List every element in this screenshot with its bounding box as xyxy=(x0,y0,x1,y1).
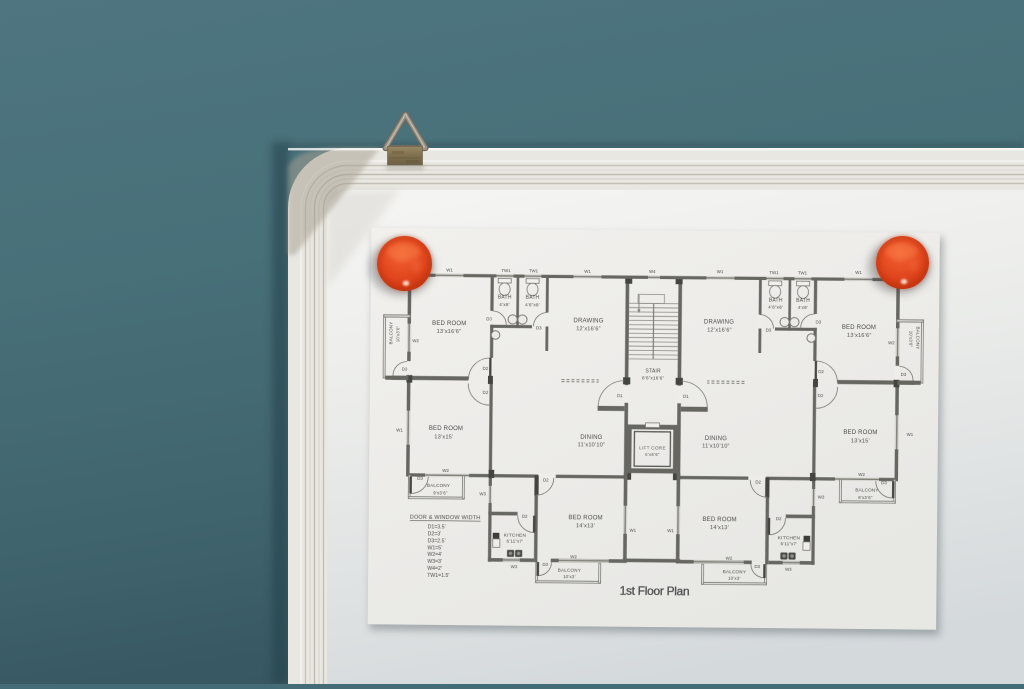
svg-text:W1: W1 xyxy=(584,269,591,274)
svg-text:W2=4’: W2=4’ xyxy=(427,552,442,558)
svg-text:W3: W3 xyxy=(479,491,486,496)
svg-text:BALCONY: BALCONY xyxy=(558,568,581,573)
svg-text:14’x13’: 14’x13’ xyxy=(576,523,595,529)
svg-text:11’x10’10”: 11’x10’10” xyxy=(702,443,729,449)
svg-text:10’x3’: 10’x3’ xyxy=(563,574,576,579)
svg-text:TW1=1.5’: TW1=1.5’ xyxy=(427,573,449,579)
svg-text:D3: D3 xyxy=(901,372,907,377)
svg-text:BATH: BATH xyxy=(769,297,783,303)
svg-text:W1: W1 xyxy=(855,270,862,275)
svg-text:4’x8’: 4’x8’ xyxy=(499,302,510,307)
svg-text:W3: W3 xyxy=(785,567,792,572)
svg-text:W4: W4 xyxy=(649,269,656,274)
svg-text:W1: W1 xyxy=(667,528,674,533)
svg-text:D3: D3 xyxy=(881,480,887,485)
svg-text:BALCONY: BALCONY xyxy=(427,483,450,488)
svg-text:1st Floor Plan: 1st Floor Plan xyxy=(619,584,689,599)
svg-text:W4=2’: W4=2’ xyxy=(427,566,442,572)
svg-text:BATH: BATH xyxy=(526,295,540,301)
svg-text:DRAWING: DRAWING xyxy=(573,318,603,324)
svg-text:11’x10’10”: 11’x10’10” xyxy=(578,442,605,448)
svg-text:W1: W1 xyxy=(396,427,403,432)
svg-text:DINING: DINING xyxy=(705,436,727,442)
svg-text:TW1: TW1 xyxy=(769,270,779,275)
svg-text:W3=3’: W3=3’ xyxy=(427,559,442,565)
svg-text:W2: W2 xyxy=(858,472,865,477)
svg-text:10’x3’6”: 10’x3’6” xyxy=(395,325,400,342)
svg-text:D2=3’: D2=3’ xyxy=(428,531,442,537)
svg-text:D1=3.5’: D1=3.5’ xyxy=(428,524,446,530)
svg-text:BALCONY: BALCONY xyxy=(855,487,878,492)
svg-text:W1=5’: W1=5’ xyxy=(427,545,442,551)
svg-text:BED ROOM: BED ROOM xyxy=(429,426,463,432)
svg-text:10’x3’6”: 10’x3’6” xyxy=(908,331,913,348)
svg-text:W2: W2 xyxy=(442,468,449,473)
svg-text:6’11”x7’: 6’11”x7’ xyxy=(507,538,524,543)
svg-text:D3: D3 xyxy=(542,562,548,567)
svg-text:D3: D3 xyxy=(486,316,492,321)
svg-text:BALCONY: BALCONY xyxy=(915,327,920,350)
svg-text:D2: D2 xyxy=(776,516,782,521)
svg-text:D3: D3 xyxy=(402,366,408,371)
svg-text:13’x16’6”: 13’x16’6” xyxy=(847,333,872,339)
svg-text:8’6”x16’6”: 8’6”x16’6” xyxy=(642,375,664,380)
svg-text:BATH: BATH xyxy=(498,294,512,300)
svg-text:D2: D2 xyxy=(543,477,549,482)
svg-text:D2: D2 xyxy=(818,393,824,398)
svg-text:6’x6’6”: 6’x6’6” xyxy=(645,452,660,457)
svg-text:W2: W2 xyxy=(570,554,577,559)
svg-text:BED ROOM: BED ROOM xyxy=(568,515,602,521)
svg-text:D3=2.5’: D3=2.5’ xyxy=(427,538,445,544)
svg-text:W2: W2 xyxy=(726,556,733,561)
svg-text:D2: D2 xyxy=(818,369,824,374)
svg-text:D2: D2 xyxy=(522,514,528,519)
svg-text:BED ROOM: BED ROOM xyxy=(702,517,736,523)
svg-text:D2: D2 xyxy=(755,479,761,484)
svg-text:TW1: TW1 xyxy=(501,268,511,273)
svg-text:W1: W1 xyxy=(717,269,724,274)
svg-text:LIFT CORE: LIFT CORE xyxy=(639,445,666,451)
svg-text:DINING: DINING xyxy=(580,435,602,441)
svg-text:TW1: TW1 xyxy=(798,270,808,275)
svg-text:13’x15’: 13’x15’ xyxy=(851,438,870,444)
svg-text:D3: D3 xyxy=(536,325,542,330)
svg-text:13’x15’: 13’x15’ xyxy=(434,434,453,440)
svg-text:4’6”x8’: 4’6”x8’ xyxy=(525,302,540,307)
svg-text:D3: D3 xyxy=(754,564,760,569)
svg-text:BATH: BATH xyxy=(796,298,810,304)
svg-text:D2: D2 xyxy=(483,390,489,395)
svg-text:D3: D3 xyxy=(417,476,423,481)
svg-text:4’x8’: 4’x8’ xyxy=(798,305,809,310)
svg-text:BALCONY: BALCONY xyxy=(388,321,393,344)
svg-text:8’x3’6”: 8’x3’6” xyxy=(858,495,873,500)
svg-text:D3: D3 xyxy=(815,320,821,325)
svg-text:BALCONY: BALCONY xyxy=(723,569,746,574)
svg-text:12’x16’6”: 12’x16’6” xyxy=(707,327,732,333)
svg-text:10’x3’: 10’x3’ xyxy=(728,576,741,581)
svg-text:W1: W1 xyxy=(446,267,453,272)
svg-text:TW1: TW1 xyxy=(529,268,539,273)
svg-text:4’6”x8’: 4’6”x8’ xyxy=(768,305,783,310)
svg-text:W1: W1 xyxy=(907,432,914,437)
svg-text:6’11”x7’: 6’11”x7’ xyxy=(781,541,798,546)
svg-text:W2: W2 xyxy=(888,340,895,345)
svg-text:STAIR: STAIR xyxy=(645,368,661,374)
svg-text:9’x3’6”: 9’x3’6” xyxy=(433,490,448,495)
svg-text:13’x16’6”: 13’x16’6” xyxy=(437,329,462,335)
svg-text:BED ROOM: BED ROOM xyxy=(842,325,876,331)
svg-text:W1: W1 xyxy=(630,528,637,533)
svg-text:D3: D3 xyxy=(766,327,772,332)
svg-text:BED ROOM: BED ROOM xyxy=(432,321,466,327)
svg-text:W3: W3 xyxy=(511,564,518,569)
svg-text:W3: W3 xyxy=(818,495,825,500)
svg-text:12’x16’6”: 12’x16’6” xyxy=(576,326,601,332)
svg-text:D1: D1 xyxy=(683,394,689,399)
svg-text:D1: D1 xyxy=(617,393,623,398)
svg-text:DRAWING: DRAWING xyxy=(704,319,734,325)
svg-text:BED ROOM: BED ROOM xyxy=(843,430,877,436)
svg-text:D2: D2 xyxy=(483,366,489,371)
svg-text:14’x13’: 14’x13’ xyxy=(710,525,729,531)
svg-text:W2: W2 xyxy=(412,338,419,343)
